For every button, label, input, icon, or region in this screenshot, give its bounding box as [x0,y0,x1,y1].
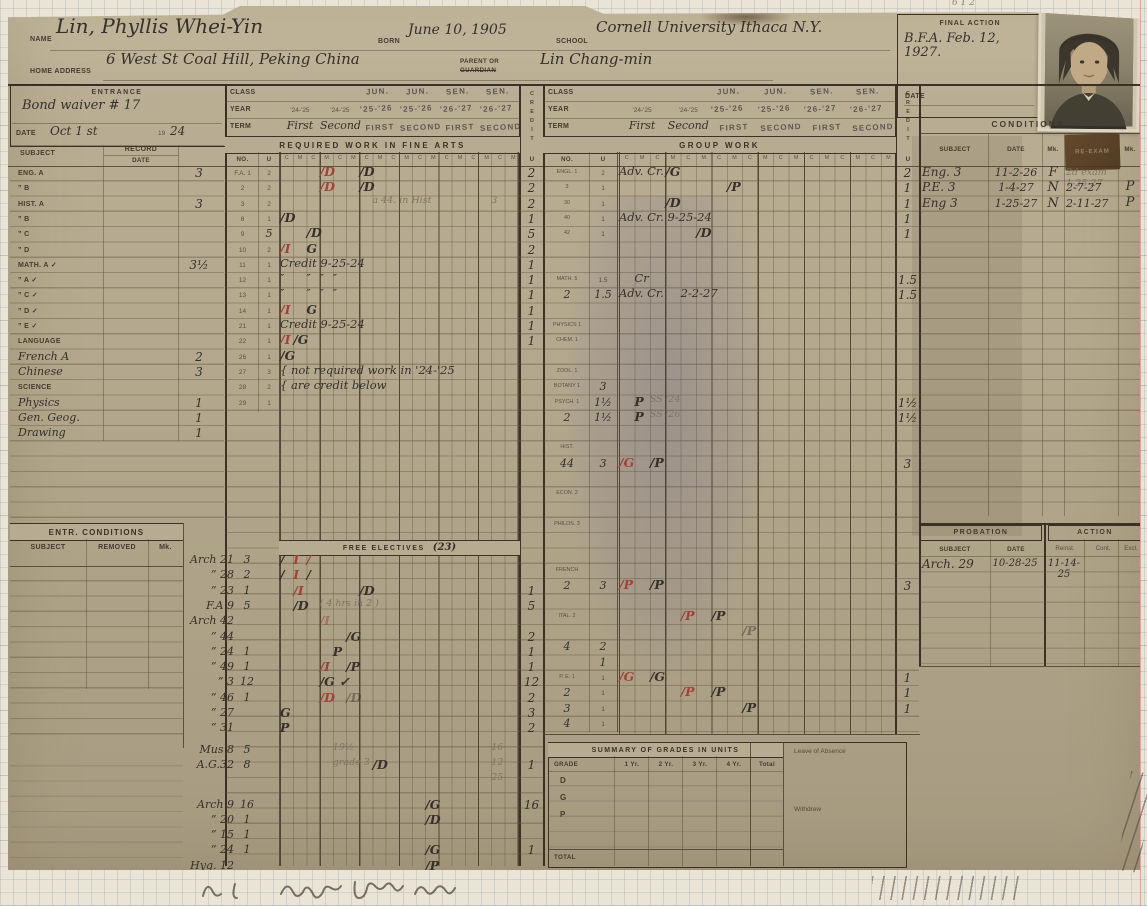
class-stamp: SEN. [856,86,880,96]
elective-units: 1 [236,585,258,597]
course-units: 2 [259,384,279,391]
course-units: 1 [259,277,279,284]
year-value: '25-'26 [400,103,440,114]
group-course: 40 [546,216,588,222]
entrance-units: 1 [182,397,216,410]
group-units: 3 [590,580,616,592]
elective-units: 1 [236,829,258,841]
req-u-label: U [259,156,279,163]
cm-header: M [320,156,333,162]
grade-mark: { not required work in '24-'25 [280,363,455,377]
credit-value: 1 [520,213,543,226]
grade-mark: ″ [280,286,284,300]
grade-mark: /P [681,608,695,623]
rule [225,101,520,102]
elective-units: 8 [236,759,258,771]
cm-header: C [773,156,788,162]
term-value: FIRST [360,122,400,133]
credit-value: 1 [896,703,919,716]
course-no: 11 [226,262,259,269]
cond-mk2-label: Mk. [1118,146,1142,153]
credit-letter: C [896,90,920,99]
elective-course: ” 44 [176,631,234,643]
course-units: 5 [259,228,279,240]
credit-value: 1 [896,672,919,685]
left-bottom-ruled [10,751,183,863]
cm-header: M [665,156,680,162]
cond-date-label: DATE [990,146,1042,153]
course-no: 3 [226,201,259,208]
entrance-subject: MATH. A ✓ [18,262,178,270]
credit-letter: C [520,90,544,99]
entrance-subject: Gen. Geog. [18,412,178,424]
req-class-label: CLASS [230,89,255,97]
probation-subject: Arch. 29 [922,558,988,571]
credit-value: 1 [520,646,543,659]
grade-mark: Cr [634,271,648,285]
entrance-subject: Drawing [18,427,178,439]
credit-letter: D [520,117,544,126]
course-units: 1 [259,323,279,330]
credit-value: 1 [520,305,543,318]
grade-mark: / [280,567,285,582]
prob-date-label: DATE [990,546,1042,553]
grade-mark: ″ [280,271,284,285]
entrance-units: 2 [182,351,216,364]
year-value: '24-'25 [320,107,360,114]
home-address-label: HOME ADDRESS [30,68,91,76]
elective-units: 1 [236,814,258,826]
grp-no-label: NO. [546,156,588,163]
grade-mark: ⋯ [386,742,396,753]
grade-mark: SS '24 [650,394,681,405]
group-course: ENGL. 1 [546,170,588,176]
elective-units: 1 [236,661,258,673]
grade-mark: { are credit below [280,378,386,392]
class-stamp: JUN. [366,86,389,96]
grp-u-label: U [590,156,616,163]
condition-reexam-mark: P [1118,180,1142,194]
entr-cond-removed-label: REMOVED [86,544,148,552]
entrance-subject: ” E ✓ [18,323,178,331]
summary-total-label: TOTAL [554,854,576,861]
credit-value: 3 [896,580,919,593]
elective-units: 1 [236,646,258,658]
credit-value: 1 [520,320,543,333]
year-value: '25-'26 [360,103,400,114]
grade-mark: P [634,409,643,424]
condition-reexam: 2-7-27 [1066,182,1118,194]
credit-value: 16 [520,799,543,812]
course-no: 13 [226,292,259,299]
group-units: 1 [590,201,616,208]
grade-mark: / [280,552,285,567]
cm-header: C [307,156,320,162]
entrance-subject: ” B [18,185,178,193]
final-action-value: B.F.A. Feb. 12, 1927. [904,32,1036,59]
student-photo [1037,3,1140,132]
entrance-subject: ” A ✓ [18,277,178,285]
printed-19: 19 [158,130,165,137]
grade-mark: Adv. Cr. [619,164,664,178]
req-term-label: TERM [230,123,251,131]
credit-value: 1.5 [896,289,919,302]
grade-mark: /I [320,659,330,674]
course-units: 1 [259,292,279,299]
entrance-subject: ” B [18,216,178,224]
withdrew-label: Withdrew [794,806,821,813]
grade-mark: /P [711,684,725,699]
condition-subject: Eng. 3 [922,166,988,179]
condition-mark: N [1042,181,1064,195]
elective-course: ” 49 [176,661,234,673]
cm-header: C [804,156,819,162]
credit-value: 1 [896,687,919,700]
credit-letter: E [896,108,920,117]
entrance-subject: Physics [18,397,178,409]
grade-mark: / [306,552,311,567]
credit-value: 1 [520,259,543,272]
group-course: 42 [546,231,588,237]
entrance-units: 1 [182,427,216,440]
grade-mark: /G [425,797,440,812]
credit-u-header: U [520,156,544,163]
grade-mark: Credit 9-25-24 [280,317,365,331]
course-no: 10 [226,247,259,254]
grade-mark: G [280,705,291,720]
grade-mark: /D [346,690,361,705]
course-units: 1 [259,262,279,269]
entrance-note: Bond waiver # 17 [22,99,140,113]
grade-mark: ( 4 hrs in 2 ) [320,598,379,609]
entrance-subject: ” D ✓ [18,308,178,316]
group-units: 1 [590,690,616,697]
cond-mk-label: Mk. [1042,146,1064,153]
subject-col-label: SUBJECT [20,150,55,158]
grade-mark: P [634,394,643,409]
grade-mark: /P [346,659,360,674]
elective-units: 5 [236,600,258,612]
entr-cond-mk-label: Mk. [148,544,183,552]
rule [225,118,520,119]
bottom-pencil-script [195,876,535,906]
credit-u-header: U [896,156,920,163]
grade-mark: /D [359,179,374,194]
course-units: 2 [259,185,279,192]
entrance-subject: ” C ✓ [18,292,178,300]
grade-mark: / [306,567,311,582]
grade-mark: G [306,241,317,256]
class-stamp: SEN. [446,86,470,96]
group-units: 1½ [590,397,616,409]
grade-mark: /D [320,179,335,194]
cm-header: M [850,156,865,162]
credit-value: 2 [520,182,543,195]
grade-mark: ″ [320,271,324,285]
condition-mark: F [1042,166,1064,180]
cm-header: C [742,156,757,162]
rule [543,118,896,119]
class-stamp: SEN. [486,86,510,96]
entrance-subject: LANGUAGE [18,338,178,346]
condition-date: 1-4-27 [990,182,1042,194]
elective-course: ” 23 [176,585,234,597]
birth-date: June 10, 1905 [408,23,507,38]
summary-col-grade: GRADE [554,761,578,768]
group-course: FRENCH [546,568,588,574]
group-course: 2 [546,687,588,699]
course-units: 3 [259,369,279,376]
credit-value: 1 [520,585,543,598]
credit-value: 1 [520,335,543,348]
credit-value: 1 [896,182,919,195]
group-units: 1 [590,185,616,192]
credit-value: 5 [520,228,543,241]
term-value: FIRST [804,122,851,133]
address-underline [103,80,773,81]
group-units: 1.5 [590,289,616,301]
cm-header: C [711,156,726,162]
elective-units: 3 [236,554,258,566]
group-course: 44 [546,458,588,470]
entrance-subject: French A [18,351,178,363]
record-col-label: RECORD [104,146,178,154]
cm-header: M [400,156,413,162]
group-units: 1 [590,706,616,713]
condition-subject: Eng 3 [922,197,988,210]
cm-header: M [347,156,360,162]
grade-mark: /P [681,684,695,699]
course-units: 1 [259,308,279,315]
conditions-title: CONDITIONS [928,120,1128,130]
cm-header: C [413,156,426,162]
grade-mark: /P [742,700,756,715]
group-course: MATH. 5 [546,277,588,283]
credit-value: 5 [520,600,543,613]
group-course: 4 [546,718,588,730]
entrance-units: 3 [182,198,216,211]
elective-course: ” 27 [176,707,234,719]
born-label: BORN [378,38,400,46]
credit-value: 1 [520,844,543,857]
group-course: PSYCH. 1 [546,400,588,406]
group-course: 2 [546,580,588,592]
term-value: FIRST [440,122,480,133]
scanned-transcript-scene: 6 1 2 NAME Lin, Phyllis Whei-Yin BORN Ju… [0,0,1147,906]
school-label: SCHOOL [556,38,588,46]
summary-col-4yr: 4 Yr. [717,761,751,768]
grade-mark: /G [665,164,680,179]
group-course: BOTANY 1 [546,384,588,390]
grade-mark: /I [280,302,290,317]
credit-value: 2 [520,167,543,180]
elective-units: 2 [236,569,258,581]
grade-mark: /I [280,241,290,256]
free-electives-title: FREE ELECTIVES [343,545,425,552]
cm-header: C [493,156,506,162]
elective-course: ” 46 [176,692,234,704]
leave-of-absence-label: Leave of Absence [794,748,846,755]
credit-value: 1 [896,228,919,241]
entrance-subject: ” D [18,247,178,255]
student-name: Lin, Phyllis Whei-Yin [56,16,263,37]
cm-header: C [681,156,696,162]
grade-mark: 12 [491,757,503,768]
course-no: 28 [226,384,259,391]
grade-mark: a 44. in Hist [372,195,431,206]
prob-cont-label: Cont. [1086,546,1120,553]
course-no: 26 [226,354,259,361]
credit-value: 3 [520,707,543,720]
rule [10,145,224,146]
rule [104,155,178,156]
cm-header: C [360,156,373,162]
group-units: 3 [590,458,616,470]
group-course: CHEM. 1 [546,338,588,344]
prob-ruled [920,557,1140,665]
grade-mark: 16 [491,742,503,753]
group-course: HIST. [546,445,588,451]
term-value: Second [665,120,711,132]
credit-letter: R [520,99,544,108]
elective-course: Arch 42 [176,615,234,627]
grade-mark: ″ [333,271,337,285]
year-value: '24-'25 [280,107,320,114]
cm-header: C [467,156,480,162]
free-electives-bar: FREE ELECTIVES (23) [279,540,520,556]
class-stamp: SEN. [810,86,834,96]
group-course: P. E. 1 [546,675,588,681]
term-value: SECOND [480,122,520,133]
entrance-subject: ” C [18,231,178,239]
summary-title: SUMMARY OF GRADES IN UNITS [548,742,783,758]
course-units: 1 [259,400,279,407]
entrance-date-label: DATE [16,130,36,138]
cm-header: M [427,156,440,162]
class-stamp: JUN. [717,86,740,96]
grade-mark: /D [359,583,374,598]
name-label: NAME [30,36,52,44]
group-course: ITAL. 2 [546,614,588,620]
credit-letter: T [896,135,920,144]
entrance-units: 3 [182,366,216,379]
elective-units: 1 [236,844,258,856]
course-units: 2 [259,170,279,177]
cm-header: M [453,156,466,162]
credit-value: 1.5 [896,274,919,287]
group-course: 30 [546,201,588,207]
entr-cond-ruled [10,566,183,746]
group-course: 4 [546,641,588,653]
year-value: '26-'27 [850,103,897,114]
grade-mark: ″ [320,286,324,300]
year-value: '24-'25 [665,107,711,114]
group-units: 1.5 [590,277,616,284]
elective-course: ” 31 [176,722,234,734]
grp-class-label: CLASS [548,89,573,97]
date-underline [904,105,1034,106]
elective-course: Mus 8 [176,744,234,756]
grade-mark: ″ [306,271,310,285]
parent-label-line2: GUARDIAN [460,67,496,74]
req-year-label: YEAR [230,106,251,114]
elective-course: ” 24 [176,646,234,658]
class-stamp: JUN. [763,86,786,96]
grade-mark: /G [293,332,308,347]
grade-mark: 3 [491,195,497,206]
group-course: ECON. 2 [546,491,588,497]
condition-reexam-mark: P [1118,196,1142,210]
grade-mark: /G [346,629,361,644]
home-address: 6 West St Coal Hill, Peking China [106,52,360,68]
elective-units: 12 [236,676,258,688]
grade-mark: 19½ [333,742,354,753]
grade-mark: /D [320,690,335,705]
grade-mark: 2-2-27 [681,286,718,300]
condition-subject: P.E. 3 [922,181,988,194]
group-course: 3 [546,185,588,191]
condition-reexam: 2-11-27 [1066,198,1118,210]
group-course: PHILOS. 3 [546,522,588,528]
grade-mark: /G [425,842,440,857]
year-value: '26-'27 [480,103,520,114]
grade-mark: /D [425,812,440,827]
condition-date: 1-25-27 [990,198,1042,210]
cm-header: M [727,156,742,162]
summary-ruled [548,771,783,849]
credit-letter: I [896,126,920,135]
entr-cond-subject-label: SUBJECT [10,544,86,552]
grade-mark: I [293,567,299,582]
credit-value: 2 [520,722,543,735]
grade-mark: /G [650,669,665,684]
course-no: 2 [226,185,259,192]
summary-col-3yr: 3 Yr. [683,761,717,768]
grade-mark: ″ [306,286,310,300]
course-units: 1 [259,354,279,361]
credit-value: 2 [520,198,543,211]
elective-units: 16 [236,799,258,811]
course-no: 29 [226,400,259,407]
course-no: 8 [226,216,259,223]
prob-reinst-label: Reinst. [1046,546,1084,553]
grade-mark: /D [320,164,335,179]
course-no: 9 [226,231,259,238]
grade-mark: /D [293,598,308,613]
grade-mark: grade 3 [333,757,370,768]
grade-mark: /I [280,332,290,347]
cm-header: C [865,156,880,162]
condition-date: 11-2-26 [990,167,1042,179]
group-bottom-line [543,734,920,735]
credit-value: 3 [896,458,919,471]
credit-value: 2 [520,692,543,705]
year-value: '26-'27 [440,103,480,114]
pencil-hatch-marks [872,876,1022,900]
credit-value: 1 [520,289,543,302]
rule [12,123,222,124]
group-units: 1 [590,657,616,669]
grade-mark: Adv. Cr. [619,286,664,300]
grade-mark: ″ [333,286,337,300]
grade-mark: /D [696,225,711,240]
group-units: 1 [590,721,616,728]
cm-header: M [819,156,834,162]
credit-value: 12 [520,676,543,689]
free-electives-note: (23) [433,543,456,554]
grade-mark: /D [665,195,680,210]
req-no-label: NO. [226,156,259,163]
